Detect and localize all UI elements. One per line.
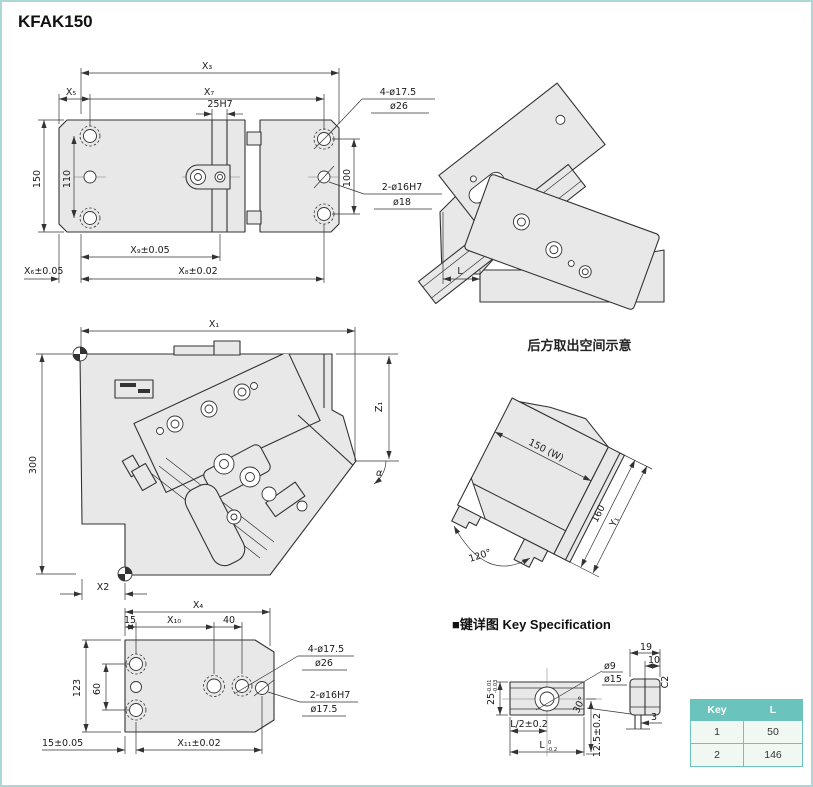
dim-40: 40 [223,615,235,626]
dim-x1: X₁ [209,319,220,330]
dim-l: L [457,266,463,277]
dim-125: 12.5±0.2 [592,713,603,757]
dim-100: 100 [342,169,353,187]
front-view: X₁ 300 Z₁ α X2 [28,319,399,600]
dim-l-main: L [539,740,545,751]
side-view: L [419,83,664,310]
dim-3: 3 [651,712,657,723]
callout-counterbore: 4-ø17.5 [380,87,416,98]
dim-x4: X₄ [193,600,204,611]
dim-15: 15 [124,615,136,626]
table-header-l: L [744,700,803,721]
callout-counterbore-2: ø26 [315,658,333,669]
table-cell-key-1: 1 [691,721,744,744]
key-spec-view: ø9 ø15 25 -0.01 -0.03 L/2±0.2 L 0 -0.2 1… [486,642,671,757]
dim-l-tol-hi: 0 [548,740,551,746]
dim-x3: X₃ [202,61,213,72]
table-cell-key-2: 2 [691,744,744,767]
dim-x9: X₉±0.05 [130,245,169,256]
callout-pin-2: ø18 [393,197,411,208]
dim-15tol: 15±0.05 [42,738,83,749]
drawing-canvas: X₃ X₅ X₇ 25H7 150 110 100 X₉±0.05 [2,2,813,787]
catalog-page: KFAK150 后方取出空间示意 ■键详图 Key Specification [0,0,813,787]
callout-pin: 2-ø16H7 [382,182,423,193]
datum-target-icon [73,347,87,361]
dim-10: 10 [648,655,660,666]
callout-counterbore-2: ø26 [390,101,408,112]
dim-x5: X₅ [66,87,77,98]
dim-123: 123 [72,679,83,697]
dim-60: 60 [92,683,103,695]
dim-l-half: L/2±0.2 [510,719,548,730]
rear-view: 150 (W) 160 Y₁ 120° [447,385,652,583]
table-row: 1 50 [691,721,803,744]
callout-pin-2: ø17.5 [311,704,338,715]
dim-x2: X2 [97,582,110,593]
dim-110: 110 [62,170,73,188]
dim-alpha: α [376,468,383,479]
dim-x7: X₇ [204,87,215,98]
dim-19: 19 [640,642,652,653]
dim-z1: Z₁ [374,402,385,413]
key-table: Key L 1 50 2 146 [690,699,803,767]
table-header-key: Key [691,700,744,721]
table-row: 2 146 [691,744,803,767]
dim-x11: X₁₁±0.02 [177,738,220,749]
bottom-view: X₄ 15 X₁₀ 40 123 60 15±0.05 X₁₁±0.02 4-ø… [42,600,358,754]
dim-x8: X₈±0.02 [178,266,217,277]
dim-300: 300 [28,456,39,474]
callout-d9: ø9 [604,661,616,672]
dim-150: 150 [32,170,43,188]
table-cell-l-2: 146 [744,744,803,767]
dim-keyway: 25H7 [207,99,232,110]
dim-x10: X₁₀ [167,615,181,626]
dim-c2: C2 [660,676,671,689]
table-header-row: Key L [691,700,803,721]
dim-key-width: 25 [486,693,497,705]
dim-x6: X₆±0.05 [24,266,63,277]
table-cell-l-1: 50 [744,721,803,744]
callout-counterbore: 4-ø17.5 [308,644,344,655]
datum-target-icon [118,567,132,581]
dim-l-tol-lo: -0.2 [547,747,557,753]
callout-pin: 2-ø16H7 [310,690,351,701]
dim-key-width-tol-lo: -0.03 [493,680,499,693]
dim-y1: Y₁ [607,515,622,530]
plan-view: X₃ X₅ X₇ 25H7 150 110 100 X₉±0.05 [24,61,442,283]
callout-d15: ø15 [604,674,622,685]
